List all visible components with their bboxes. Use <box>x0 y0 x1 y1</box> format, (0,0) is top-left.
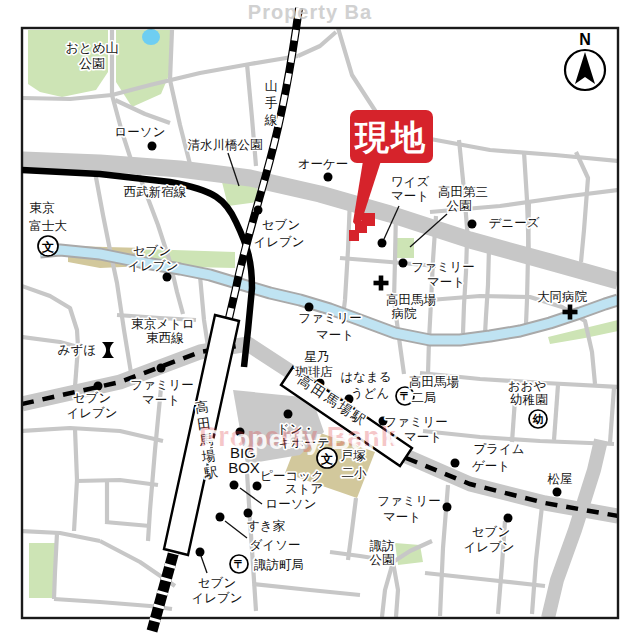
compass-north-label: N <box>579 31 591 48</box>
label-peacock-1: ピーコック <box>260 469 324 483</box>
label-peacock-2: ストア <box>285 482 323 496</box>
label-baba-hospital-1: 高田馬場 <box>386 293 437 307</box>
svg-text:〒: 〒 <box>400 390 411 402</box>
poi-familymart-se <box>443 503 452 512</box>
svg-text:〒: 〒 <box>234 558 245 570</box>
label-familymart-ne-1: ファミリー <box>411 260 475 274</box>
label-ys-mart-1: ワイズ <box>391 175 430 189</box>
label-familymart-ne-2: マート <box>427 275 465 289</box>
label-hanamaru-2: うどん <box>351 386 389 400</box>
label-tokyo-fuji-1: 東京 <box>30 201 56 215</box>
site-label: 現地 <box>354 118 427 156</box>
poi-seven-eleven-se <box>504 514 513 523</box>
label-suwacho-post: 諏訪町局 <box>254 558 304 572</box>
southwest-green <box>29 543 56 598</box>
label-tokyo-fuji-2: 富士大 <box>29 219 67 233</box>
label-matsuya: 松屋 <box>548 472 573 486</box>
label-tozai-line-1: 東京メトロ <box>131 317 194 331</box>
label-shimizugawabashi: 清水川橋公園 <box>188 138 263 152</box>
poi-seven-eleven-sw <box>94 382 103 391</box>
label-seven-mid-2: イレブン <box>253 235 304 249</box>
poi-ys-mart <box>378 239 387 248</box>
map-canvas: 現地文文〒〒幼おとめ山公園ローソン清水川橋公園山手線西武新宿線オーケーワイズマー… <box>0 0 640 640</box>
label-ok-store: オーケー <box>298 157 349 171</box>
poi-seven-eleven-mid <box>254 206 263 215</box>
poi-familymart-ne <box>399 259 408 268</box>
poi-sukiya <box>244 509 253 518</box>
label-sukiya: すき家 <box>247 519 286 533</box>
label-takada-daisan-1: 高田第三 <box>438 185 488 199</box>
label-tozuka-2: 二小 <box>342 466 368 480</box>
label-mizuho: みずほ <box>58 343 96 357</box>
label-seven-south-2: イレブン <box>191 591 242 605</box>
label-suwa-park-1: 諏訪 <box>370 539 395 553</box>
label-seven-se-1: セブン <box>472 525 510 539</box>
svg-text:幼: 幼 <box>533 413 544 425</box>
label-ooya-1: おおや <box>508 379 546 393</box>
label-familymart-river-1: ファミリー <box>298 311 362 325</box>
label-ys-mart-2: マート <box>391 189 429 203</box>
label-daido-hospital: 大同病院 <box>537 290 588 304</box>
label-seibu-line: 西武新宿線 <box>124 185 187 199</box>
label-familymart-se-2: マート <box>383 510 421 524</box>
poi-matsuya <box>553 488 562 497</box>
label-baba2-post-2: 二局 <box>412 391 437 405</box>
ooya-kindergarten-icon: 幼 <box>529 410 547 428</box>
poi-seven-eleven-west <box>163 273 172 282</box>
label-hanamaru-1: はなまる <box>340 370 391 384</box>
label-suwa-park-2: 公園 <box>370 553 395 567</box>
label-familymart-mid-2: マート <box>404 430 442 444</box>
label-prime-1: プライム <box>473 442 524 456</box>
label-seven-west-1: セブン <box>133 244 171 258</box>
label-yamanote-line: 山手線 <box>264 79 278 127</box>
label-otomeyama-1: おとめ山 <box>66 40 119 55</box>
label-lawson-south: ローソン <box>266 497 317 511</box>
poi-lawson-south <box>230 481 239 490</box>
watermark-top: Property Ba <box>248 1 372 23</box>
label-seven-west-2: イレブン <box>127 259 178 273</box>
otomeyama-pond <box>142 29 160 45</box>
poi-familymart-west <box>157 364 166 373</box>
label-ooya-2: 幼稚園 <box>510 393 548 407</box>
label-familymart-west-1: ファミリー <box>130 378 194 392</box>
svg-text:文: 文 <box>41 240 54 254</box>
label-takada-daisan-2: 公園 <box>447 199 472 213</box>
label-seven-mid-1: セブン <box>262 218 300 232</box>
poi-dennys <box>468 220 477 229</box>
poi-lawson-north <box>148 142 157 151</box>
watermark-center: Property Bank <box>203 425 401 455</box>
suwacho-post-icon: 〒 <box>230 555 248 573</box>
poi-don-quijote <box>284 410 293 419</box>
map-screenshot: 現地文文〒〒幼おとめ山公園ローソン清水川橋公園山手線西武新宿線オーケーワイズマー… <box>0 0 640 640</box>
poi-seven-eleven-south <box>196 548 205 557</box>
label-seven-sw-1: セブン <box>73 391 111 405</box>
label-familymart-se-1: ファミリー <box>377 494 441 508</box>
label-daiso: ダイソー <box>250 538 301 552</box>
label-familymart-west-2: マート <box>142 393 180 407</box>
label-familymart-river-2: マート <box>316 328 354 342</box>
label-prime-2: ゲート <box>472 459 510 473</box>
label-seven-se-2: イレブン <box>463 540 514 554</box>
label-seven-south-1: セブン <box>198 576 236 590</box>
label-dennys: デニーズ <box>489 216 540 230</box>
label-bigbox-2: BOX <box>228 459 260 476</box>
label-baba-hospital-2: 病院 <box>392 307 418 321</box>
poi-daiso <box>216 513 225 522</box>
label-baba2-post-1: 高田馬場 <box>409 375 460 389</box>
tokyo-fuji-univ-icon: 文 <box>38 236 58 256</box>
poi-prime-gate <box>451 459 460 468</box>
label-otomeyama-2: 公園 <box>79 56 105 71</box>
poi-ok-store <box>324 173 333 182</box>
label-lawson-north: ローソン <box>115 125 166 139</box>
label-tozai-line-2: 東西線 <box>146 331 184 345</box>
label-hoshino-1: 星乃 <box>305 350 330 364</box>
label-seven-sw-2: イレブン <box>66 406 117 420</box>
